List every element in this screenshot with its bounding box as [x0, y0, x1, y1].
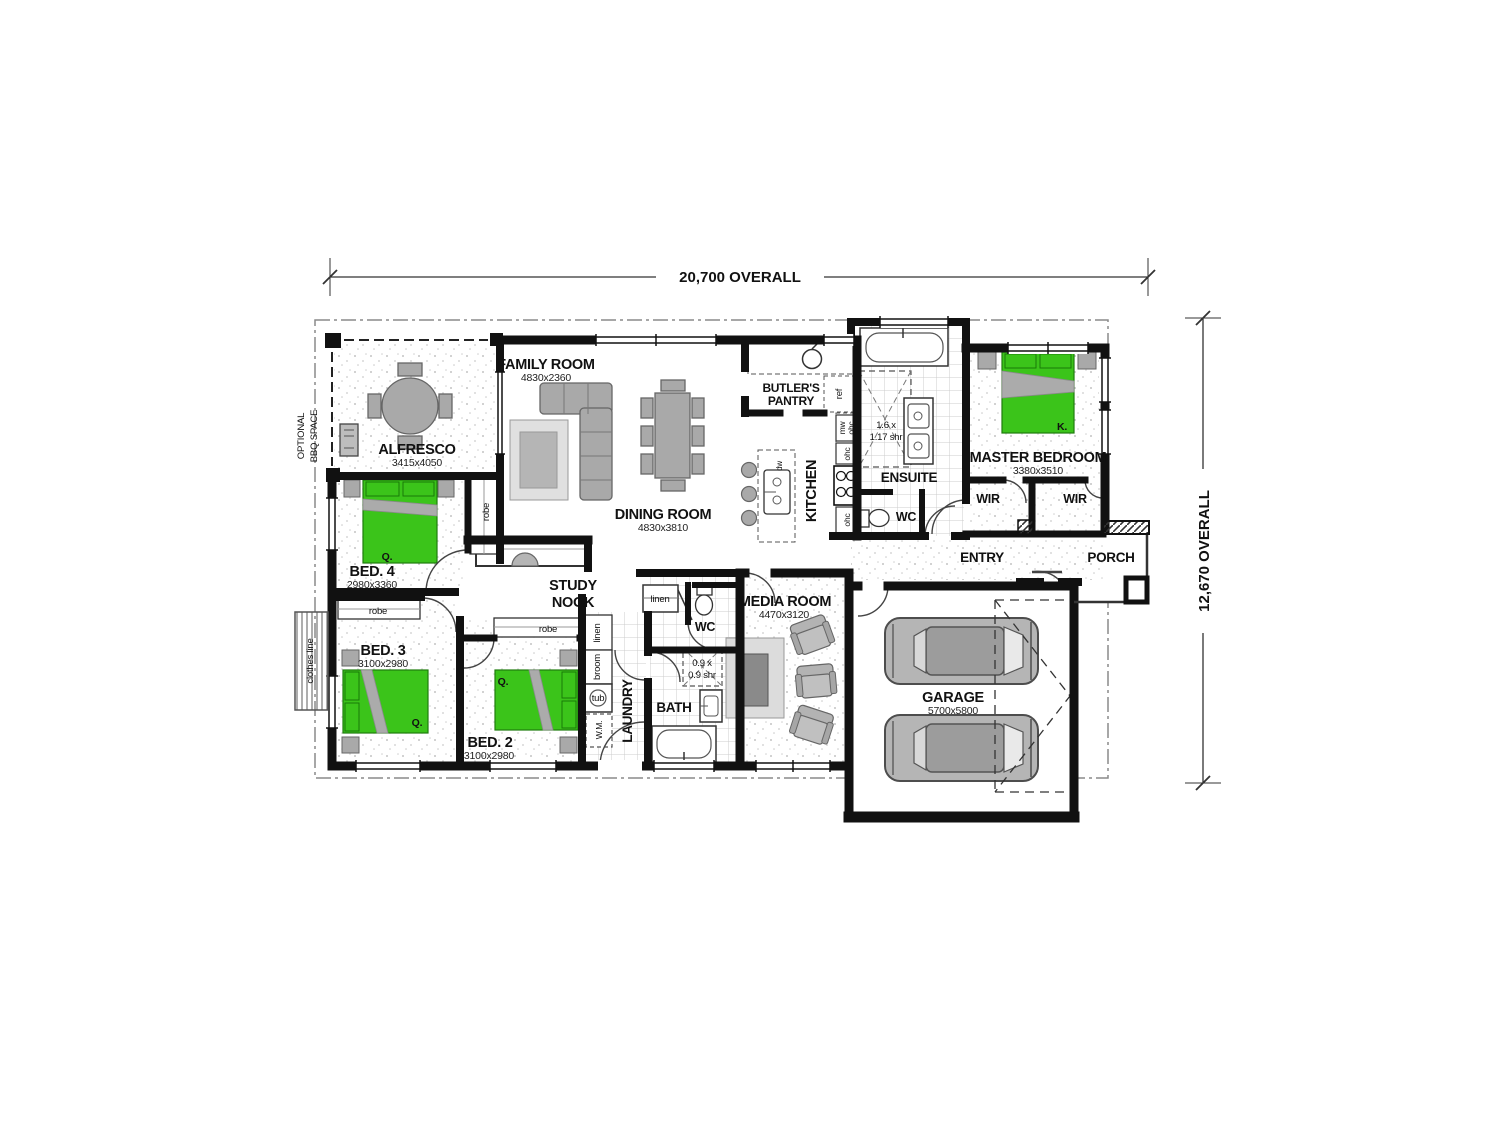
butlers-pantry-line1: BUTLER'S [762, 381, 819, 395]
tub-label: tub [592, 693, 605, 704]
ohc-label-3: ohc [842, 513, 852, 527]
kitchen-label: KITCHEN [804, 460, 820, 522]
main-shower-dim1: 0.9 x [692, 658, 712, 669]
ensuite-wc-label: WC [896, 510, 916, 524]
media-room-label: MEDIA ROOM [739, 594, 832, 610]
bbq [340, 424, 358, 456]
stool [742, 487, 757, 502]
pantry-bench [748, 344, 853, 374]
laundry-label: LAUNDRY [620, 679, 635, 743]
bed2-label: BED. 2 [468, 735, 513, 751]
pantry-sink [803, 350, 822, 369]
bath-label: BATH [656, 700, 691, 715]
ensuite-shower-dim2: 1.17 shr [870, 432, 903, 443]
master-bedroom-label: MASTER BEDROOM [970, 450, 1107, 466]
bed2-q: Q. [498, 676, 509, 688]
dining-room-label: DINING ROOM [615, 507, 712, 523]
bed3-q: Q. [412, 717, 423, 729]
broom-label: broom [592, 654, 603, 680]
bed4-q: Q. [382, 551, 393, 563]
clothes-line-label: clothes line [305, 638, 316, 683]
floor-plan-drawing: 20,700 OVERALL 12,670 OVERALL OPTIONAL B… [0, 0, 1500, 1133]
family-room-size: 4830x2360 [521, 372, 572, 384]
study-nook-line2: NOOK [552, 595, 595, 611]
dishwasher-label: dw [775, 461, 784, 471]
wc-main-label: WC [695, 620, 715, 634]
porch-column [1126, 578, 1147, 602]
bed3-label: BED. 3 [361, 643, 406, 659]
linen-wc-label: linen [650, 594, 669, 605]
ensuite-shower-dim1: 1.6 x [876, 420, 896, 431]
ensuite-label: ENSUITE [881, 470, 938, 485]
family-room-label: FAMILY ROOM [497, 357, 595, 373]
linen-hall-label: linen [592, 623, 603, 642]
tv-unit [744, 654, 768, 706]
ohc-label-1: ohc [846, 421, 856, 435]
bed4-size: 2980x3360 [347, 579, 398, 591]
dining-table [655, 393, 690, 478]
robe-bed2-label: robe [539, 624, 557, 635]
robe-bed4-label: robe [481, 503, 492, 521]
garage-label: GARAGE [922, 690, 984, 706]
main-shower-dim2: 0.9 shr [688, 670, 716, 681]
bed2-size: 3100x2980 [464, 750, 515, 762]
overall-width-dim: 20,700 OVERALL [679, 269, 801, 286]
optional-bbq-line1: OPTIONAL [296, 413, 307, 459]
master-bedroom-size: 3380x3510 [1013, 465, 1064, 477]
fridge-label: ref [834, 388, 845, 399]
overall-depth-dim: 12,670 OVERALL [1196, 490, 1213, 612]
round-table [382, 378, 438, 434]
dining-room-size: 4830x3810 [638, 522, 689, 534]
floor-plan-page: 20,700 OVERALL 12,670 OVERALL OPTIONAL B… [0, 0, 1500, 1133]
robe-bed3-label: robe [369, 606, 387, 617]
butlers-pantry-line2: PANTRY [768, 394, 814, 408]
bed4-label: BED. 4 [350, 564, 395, 580]
stool [742, 463, 757, 478]
bed-king-label: K. [1057, 421, 1067, 433]
stool [742, 511, 757, 526]
alfresco-size: 3415x4050 [392, 457, 443, 469]
porch-label: PORCH [1087, 550, 1134, 565]
wir-right-label: WIR [1063, 492, 1087, 506]
media-room-size: 4470x3120 [759, 609, 810, 621]
entry-label: ENTRY [960, 550, 1004, 565]
garage-size: 5700x5800 [928, 705, 979, 717]
wm-label: W.M. [594, 721, 604, 740]
ohc-label-2: ohc [842, 447, 852, 461]
optional-bbq-line2: BBQ SPACE [309, 410, 320, 462]
wir-left-label: WIR [976, 492, 1000, 506]
bed3-size: 3100x2980 [358, 658, 409, 670]
study-nook-line1: STUDY [549, 578, 597, 594]
alfresco-label: ALFRESCO [378, 442, 455, 458]
